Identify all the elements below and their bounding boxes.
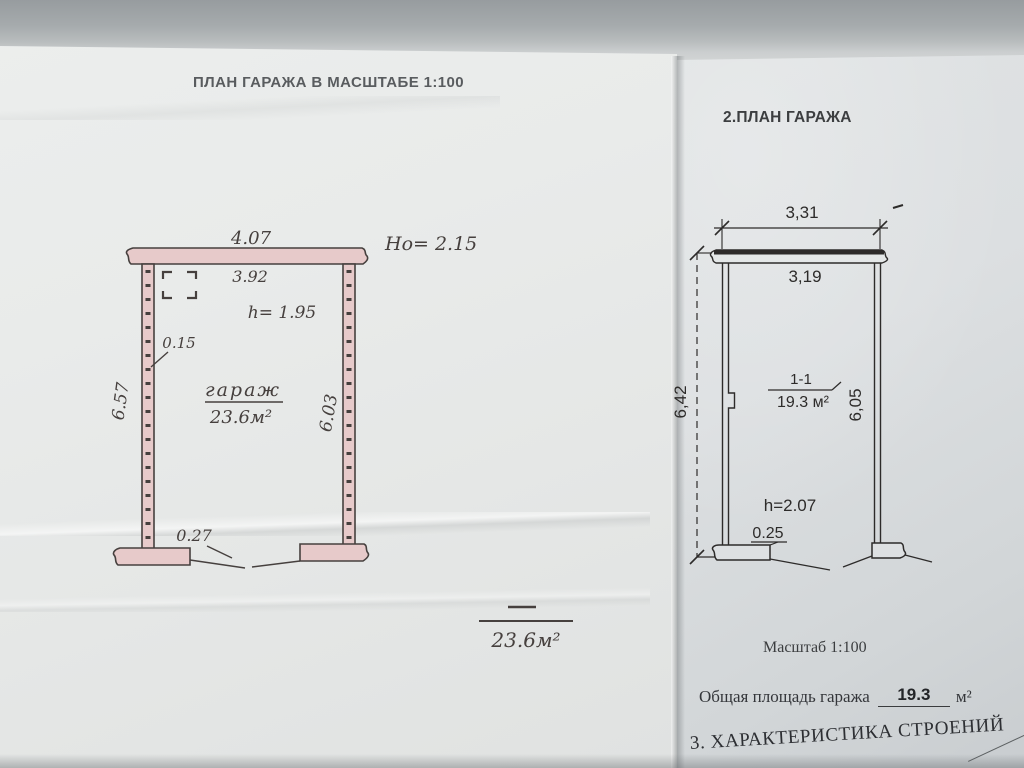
hatch-symbol [163,272,196,298]
left-footing [712,545,770,560]
top-wall [126,248,367,264]
dim-inner-width: 3.92 [232,267,268,286]
room-label: гараж [205,379,281,401]
dim-left-depth: 6,42 [671,385,690,418]
right-wall [343,264,355,546]
right-garage-plan-drawing: 3,31 3,19 6,42 6,05 1-1 19.3 м² h=2.07 0… [664,192,984,582]
leader-line [207,546,232,558]
left-plan-title: ПЛАН ГАРАЖА В МАСШТАБЕ 1:100 [193,74,464,91]
right-plan-title: 2.ПЛАН ГАРАЖА [723,109,852,127]
stray-pen-mark [893,205,903,208]
dim-left-depth: 6.57 [109,381,134,421]
dim-outer-width: 3,31 [785,203,818,222]
left-footing [113,548,190,565]
paper-crease [0,96,500,120]
dim-gate-height: Hо= 2.15 [384,233,477,255]
left-wall-inner [729,263,735,545]
room-area: 19.3 м² [777,394,830,411]
ground-line [770,559,830,570]
right-footing [300,544,369,561]
dim-right-depth: 6.03 [316,393,342,434]
ground-line [252,561,300,567]
total-area-line: Общая площадь гаража 19.3 м² [699,686,972,707]
total-area-unit: м² [956,687,972,707]
scale-note: Масштаб 1:100 [763,639,867,657]
dim-footing-width: 0.25 [752,525,783,542]
dim-inner-height: h= 1.95 [248,303,316,323]
dim-outer-width: 4.07 [230,228,272,249]
dim-inner-width: 3,19 [788,267,821,286]
total-area-blank: 19.3 [878,686,950,707]
ground-line [190,560,245,568]
right-footing [872,543,906,558]
left-garage-plan-drawing: 4.07 Hо= 2.15 3.92 h= 1.95 0.15 6.57 6.0… [55,210,635,670]
dim-right-depth: 6,05 [846,388,865,421]
dim-inner-height: h=2.07 [764,496,816,515]
section-label: 1-1 [790,371,812,388]
left-wall [142,264,154,549]
ground-line [843,556,872,567]
dim-wall-thickness: 0.15 [162,334,195,352]
photo-of-garage-plans: ПЛАН ГАРАЖА В МАСШТАБЕ 1:100 4.07 Hо= 2.… [0,0,1024,768]
total-area-value: 19.3 [897,685,930,704]
section-underline-arrow [832,382,841,390]
ground-line [905,555,932,562]
summary-area: 23.6м² [490,628,560,652]
total-area-label: Общая площадь гаража [699,687,870,707]
room-area: 23.6м² [209,407,272,428]
dim-footing-width: 0.27 [176,526,212,545]
